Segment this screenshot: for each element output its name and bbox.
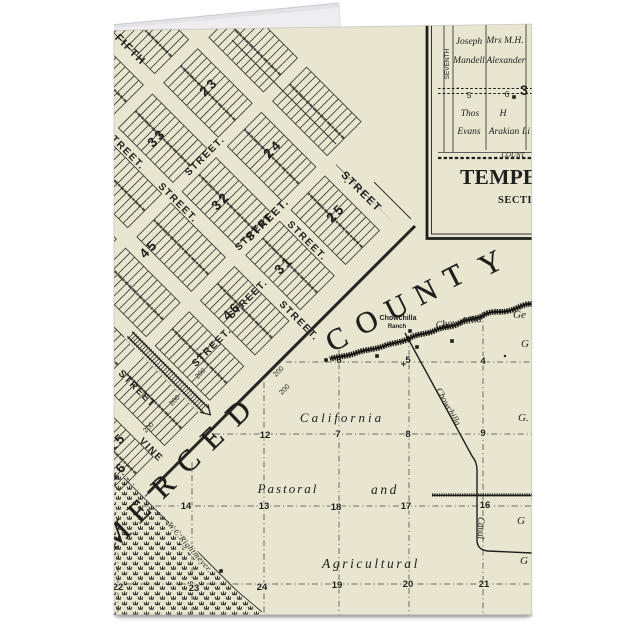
svg-text:California: California <box>300 410 384 425</box>
svg-text:17: 17 <box>401 501 412 512</box>
svg-text:6: 6 <box>505 89 510 99</box>
svg-text:5: 5 <box>467 90 472 100</box>
svg-text:20: 20 <box>403 579 414 590</box>
svg-text:Ranch: Ranch <box>388 324 407 330</box>
svg-text:G: G <box>520 555 528 567</box>
svg-text:COUNT: COUNT <box>501 151 525 159</box>
svg-text:SECTI: SECTI <box>498 195 532 206</box>
svg-text:G.: G. <box>518 412 529 424</box>
svg-text:13: 13 <box>259 501 270 512</box>
svg-text:and: and <box>371 482 399 497</box>
svg-text:8: 8 <box>405 429 410 440</box>
svg-text:G: G <box>521 338 529 350</box>
svg-text:7: 7 <box>335 429 340 440</box>
svg-text:Li: Li <box>521 127 530 137</box>
svg-text:18: 18 <box>331 502 342 513</box>
svg-text:Mrs M.H.: Mrs M.H. <box>485 36 523 46</box>
svg-text:4: 4 <box>480 356 486 367</box>
svg-text:Canal: Canal <box>476 517 486 540</box>
svg-text:Agricultural: Agricultural <box>321 556 420 571</box>
svg-text:Arakian: Arakian <box>488 127 520 137</box>
svg-text:Thos: Thos <box>461 109 480 119</box>
svg-text:21: 21 <box>479 579 490 590</box>
svg-text:Alexander: Alexander <box>485 56 525 66</box>
svg-text:16: 16 <box>480 500 491 511</box>
svg-text:5: 5 <box>405 355 411 366</box>
svg-text:Mandell: Mandell <box>452 56 485 66</box>
svg-text:Joseph: Joseph <box>456 37 483 47</box>
svg-text:12: 12 <box>260 430 271 441</box>
svg-text:Ge: Ge <box>513 309 526 321</box>
svg-text:SEVENTH: SEVENTH <box>444 48 451 79</box>
svg-text:14: 14 <box>181 501 192 512</box>
svg-text:23: 23 <box>189 583 200 594</box>
svg-text:G: G <box>517 515 525 527</box>
svg-text:19: 19 <box>332 580 343 591</box>
svg-text:9: 9 <box>480 428 485 439</box>
svg-text:Evans: Evans <box>456 127 481 137</box>
svg-text:H: H <box>499 109 508 119</box>
svg-text:Chowchilla: Chowchilla <box>380 315 417 322</box>
svg-text:Pastoral: Pastoral <box>257 481 319 496</box>
svg-text:24: 24 <box>257 582 268 593</box>
svg-text:3: 3 <box>520 82 528 98</box>
